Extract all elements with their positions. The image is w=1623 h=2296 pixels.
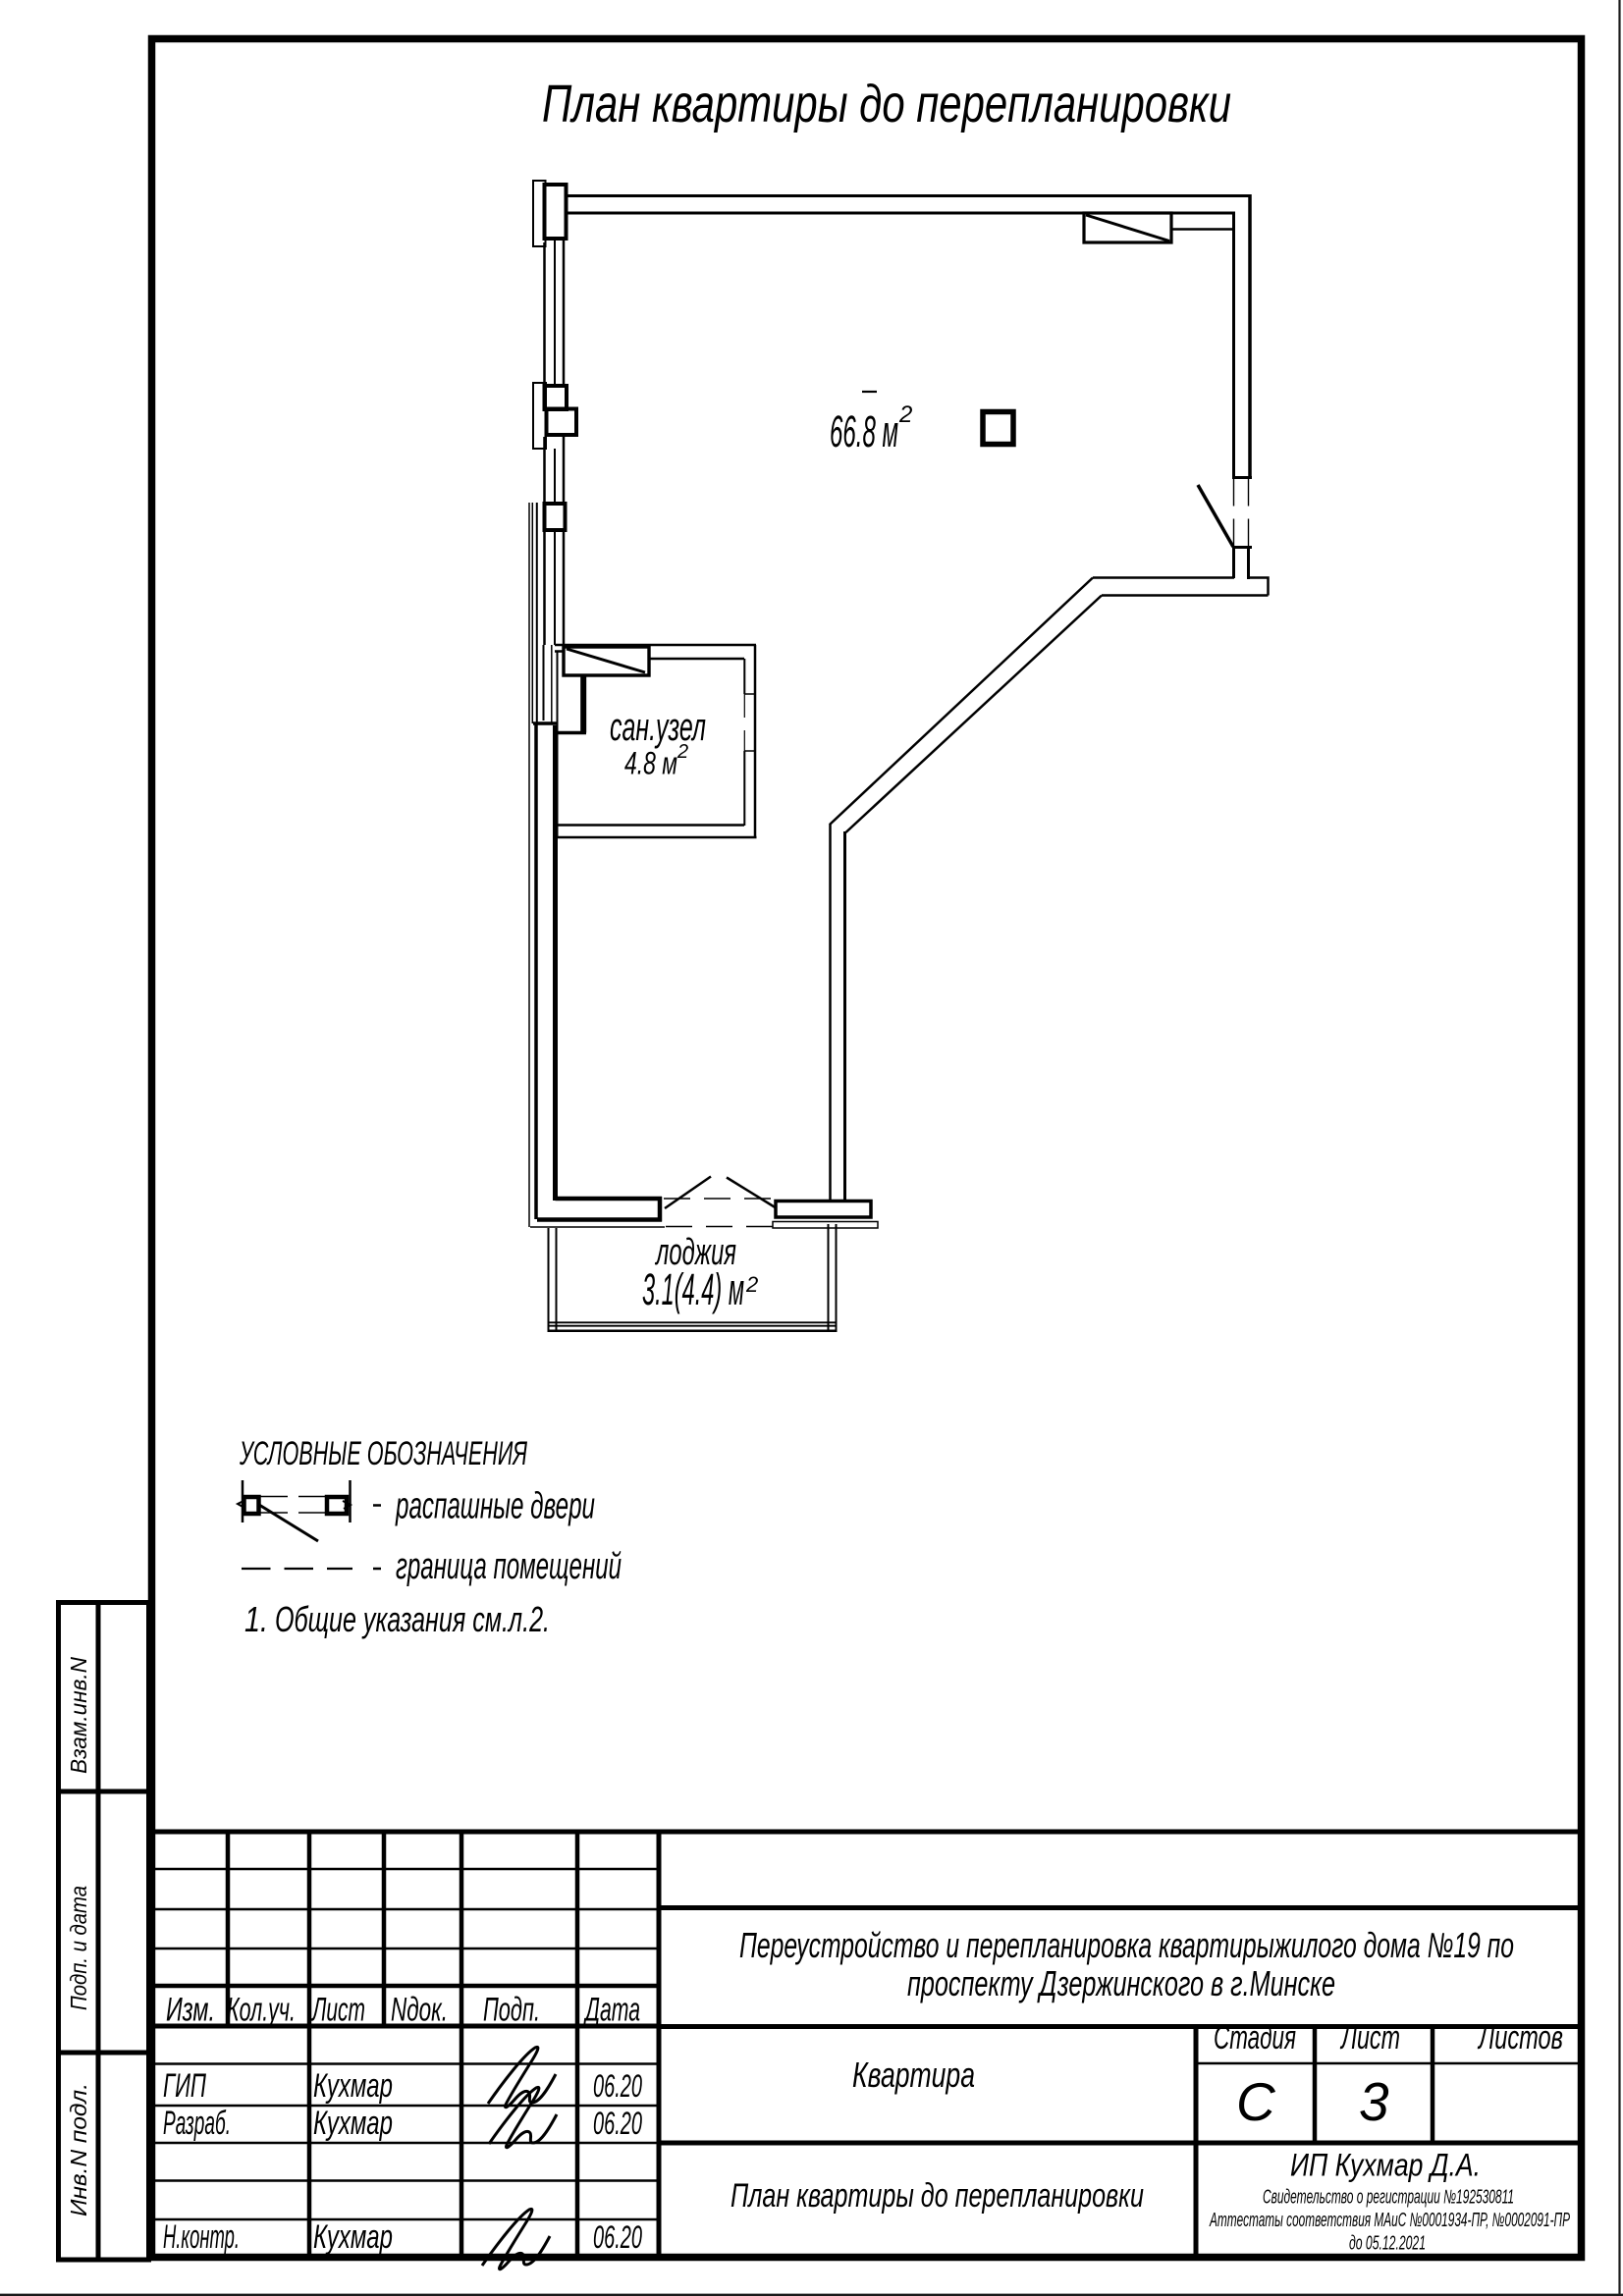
svg-text:06.20: 06.20	[593, 2219, 642, 2255]
svg-text:Взам.инв.N: Взам.инв.N	[66, 1657, 91, 1774]
svg-text:Свидетельство о регистрации №1: Свидетельство о регистрации №192530811	[1263, 2187, 1514, 2209]
svg-text:ИП Кухмар Д.А.: ИП Кухмар Д.А.	[1290, 2148, 1481, 2183]
svg-text:Квартира: Квартира	[852, 2055, 975, 2095]
svg-text:06.20: 06.20	[593, 2068, 642, 2104]
svg-text:С: С	[1236, 2071, 1276, 2132]
svg-text:2: 2	[676, 741, 688, 763]
svg-text:Аттестаты соответствия МАиС №0: Аттестаты соответствия МАиС №0001934-ПР,…	[1209, 2210, 1570, 2231]
svg-text:Подп. и дата: Подп. и дата	[66, 1886, 91, 2010]
svg-text:Лист: Лист	[1340, 2019, 1400, 2056]
svg-text:06.20: 06.20	[593, 2106, 642, 2141]
svg-text:Разраб.: Разраб.	[163, 2105, 231, 2142]
svg-text:Стадия: Стадия	[1214, 2019, 1296, 2056]
svg-text:4.8 м: 4.8 м	[624, 746, 677, 781]
svg-text:проспекту Дзержинского в г.Мин: проспекту Дзержинского в г.Минске	[907, 1963, 1335, 2003]
svg-text:Подп.: Подп.	[483, 1992, 540, 2029]
svg-text:Изм.: Изм.	[166, 1992, 215, 2029]
svg-text:Кухмар: Кухмар	[313, 2105, 393, 2142]
svg-text:Инв.N подл.: Инв.N подл.	[66, 2083, 91, 2216]
svg-text:1.: 1.	[244, 1599, 268, 1639]
svg-text:66.8 м: 66.8 м	[830, 406, 898, 456]
svg-text:Дата: Дата	[583, 1992, 640, 2029]
svg-text:Листов: Листов	[1478, 2019, 1563, 2056]
svg-text:Н.контр.: Н.контр.	[163, 2218, 240, 2256]
svg-text:Nдок.: Nдок.	[391, 1992, 448, 2029]
svg-text:Переустройство и перепланировк: Переустройство и перепланировка квартиры…	[739, 1925, 1514, 1965]
svg-text:3: 3	[1359, 2071, 1389, 2132]
svg-text:2: 2	[898, 401, 912, 428]
svg-text:ГИП: ГИП	[163, 2067, 206, 2105]
svg-text:План квартиры до перепланировк: План квартиры до перепланировки	[730, 2177, 1144, 2215]
svg-text:План квартиры до перепланировк: План квартиры до перепланировки	[542, 75, 1231, 133]
svg-text:Лист: Лист	[311, 1992, 365, 2029]
svg-text:2: 2	[745, 1272, 758, 1297]
svg-text:Общие указания см.л.2.: Общие указания см.л.2.	[275, 1599, 550, 1639]
svg-text:Кухмар: Кухмар	[313, 2218, 393, 2256]
svg-text:граница помещений: граница помещений	[396, 1546, 622, 1587]
svg-text:Кухмар: Кухмар	[313, 2067, 393, 2105]
svg-text:3.1(4.4) м: 3.1(4.4) м	[642, 1264, 744, 1314]
svg-text:до 05.12.2021: до 05.12.2021	[1349, 2233, 1426, 2255]
svg-text:УСЛОВНЫЕ ОБОЗНАЧЕНИЯ: УСЛОВНЫЕ ОБОЗНАЧЕНИЯ	[239, 1435, 527, 1472]
svg-text:распашные двери: распашные двери	[395, 1486, 595, 1527]
svg-text:сан.узел: сан.узел	[610, 706, 706, 749]
svg-text:Кол.уч.: Кол.уч.	[227, 1992, 296, 2029]
